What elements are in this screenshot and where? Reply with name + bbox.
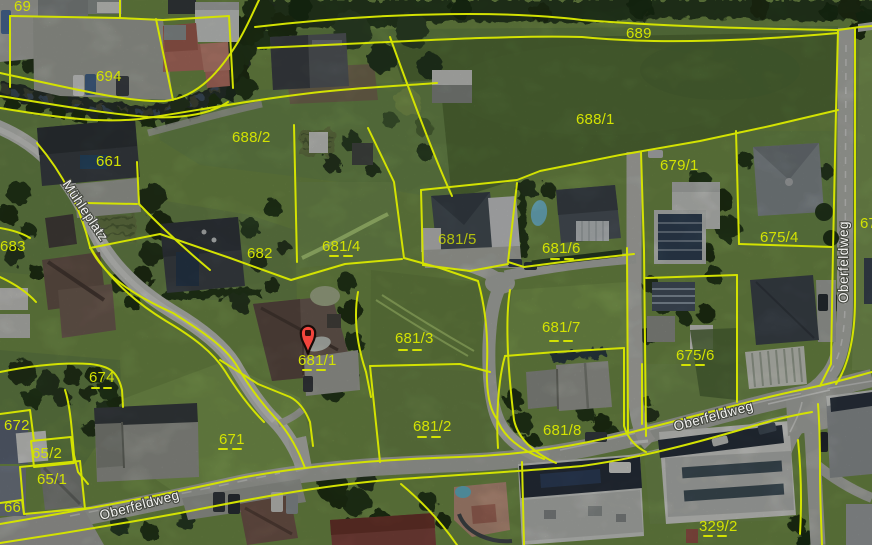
svg-text:65/2: 65/2	[32, 445, 62, 462]
svg-text:681/7: 681/7	[542, 319, 581, 336]
svg-text:69: 69	[14, 0, 31, 15]
svg-text:681/4: 681/4	[322, 238, 361, 255]
svg-text:681/1: 681/1	[298, 352, 337, 369]
svg-text:694: 694	[96, 68, 122, 85]
svg-text:672: 672	[4, 417, 30, 434]
svg-text:688/1: 688/1	[576, 111, 615, 128]
svg-text:681/2: 681/2	[413, 418, 452, 435]
svg-text:681/3: 681/3	[395, 330, 434, 347]
svg-text:329/2: 329/2	[699, 518, 738, 535]
svg-text:689: 689	[626, 25, 652, 42]
svg-text:65/1: 65/1	[37, 471, 67, 488]
svg-text:679/1: 679/1	[660, 157, 699, 174]
svg-text:674: 674	[89, 369, 115, 386]
svg-text:683: 683	[0, 238, 26, 255]
svg-text:688/2: 688/2	[232, 129, 271, 146]
svg-text:66: 66	[4, 499, 21, 516]
svg-text:661: 661	[96, 153, 122, 170]
svg-text:681/6: 681/6	[542, 240, 581, 257]
svg-text:67: 67	[860, 215, 872, 232]
svg-text:675/6: 675/6	[676, 347, 715, 364]
svg-text:681/8: 681/8	[543, 422, 582, 439]
svg-text:681/5: 681/5	[438, 231, 477, 248]
svg-text:671: 671	[219, 431, 245, 448]
svg-text:Oberfeldweg: Oberfeldweg	[836, 221, 851, 303]
svg-text:682: 682	[247, 245, 273, 262]
svg-text:675/4: 675/4	[760, 229, 799, 246]
